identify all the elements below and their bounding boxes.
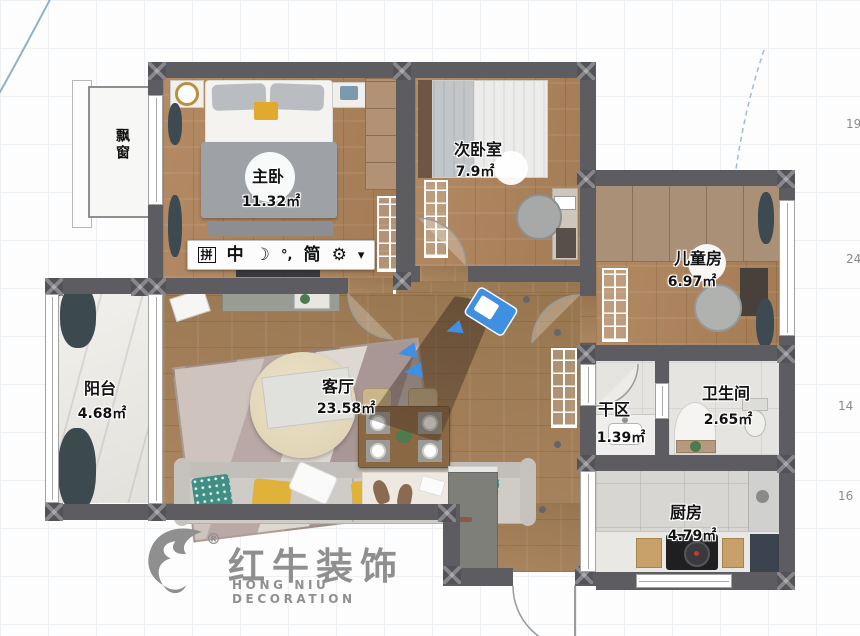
registered-mark: ® (206, 530, 221, 548)
ime-pinyin-button[interactable]: 拼 (198, 247, 216, 263)
dimension-label: 19 (846, 117, 860, 131)
wall-segment (596, 345, 779, 361)
balcony-window (45, 294, 59, 503)
cabinet-handle (458, 517, 472, 522)
room-area-living: 23.58㎡ (317, 398, 375, 418)
cutting-board (722, 538, 744, 568)
wall-segment (468, 266, 596, 282)
plant (58, 428, 96, 512)
dimension-label: 14 (838, 399, 853, 413)
corner-post (45, 503, 63, 521)
room-area-bath: 2.65㎡ (704, 409, 753, 429)
corner-post (131, 278, 149, 296)
ime-mode-button[interactable]: 中 (227, 247, 244, 264)
cutting-board (636, 538, 662, 568)
corner-post (148, 62, 166, 80)
book-cart (556, 228, 576, 258)
door-gap-floor (348, 278, 393, 294)
corner-post (443, 566, 461, 584)
corner-post (777, 572, 795, 590)
corner-post (393, 272, 411, 290)
dimension-label: 16 (838, 489, 853, 503)
kids-chair (694, 284, 742, 332)
room-name-dry: 干区 (598, 396, 630, 420)
wall-segment (415, 266, 420, 282)
logo: ® 红牛装饰 HONG NIU DECORATION (138, 524, 428, 610)
wall-segment (148, 504, 458, 520)
door-gap-floor (420, 266, 468, 282)
room-area-master: 11.32㎡ (242, 191, 300, 211)
bathroom-door (655, 383, 669, 419)
kitchen-sink (756, 490, 769, 503)
kitchen-window (636, 574, 732, 588)
floor-plan-canvas: 飘窗 主卧 11.32㎡ 次卧室 7.9㎡ 儿童房 6.97㎡ 阳台 4.68㎡… (0, 0, 860, 636)
wall-segment (148, 62, 596, 78)
dark-cabinet (750, 534, 779, 572)
radiator (602, 268, 628, 342)
wall-segment (596, 170, 779, 186)
camera-lens-icon (473, 295, 499, 320)
balcony-slider (148, 294, 163, 504)
ime-more-icon[interactable]: ▾ (358, 249, 365, 262)
corner-post (777, 345, 795, 363)
kids-room-window (779, 200, 795, 336)
corner-post (577, 62, 595, 80)
dimension-label: 24 (846, 252, 860, 266)
sofa-armrest (520, 458, 536, 526)
room-name-master: 主卧 (252, 163, 284, 187)
wall-segment (148, 278, 348, 294)
corner-post (777, 455, 795, 473)
dry-area-door (580, 364, 596, 406)
wall-segment (779, 336, 795, 572)
bed-bench (207, 221, 333, 236)
kitchen-sliding-door (580, 471, 596, 572)
room-area-second: 7.9㎡ (456, 161, 495, 181)
corner-post (148, 503, 166, 521)
burner-flame-dot (694, 551, 699, 556)
room-name-bath: 卫生间 (702, 380, 750, 404)
plate (422, 443, 438, 459)
wall-segment (596, 455, 779, 471)
logo-en-text: HONG NIU DECORATION (232, 578, 428, 606)
radiator (551, 348, 577, 428)
corner-post (438, 504, 456, 522)
decor-plate (175, 82, 199, 106)
room-area-kitchen: 4.79㎡ (668, 525, 717, 545)
wall-segment (396, 62, 415, 282)
corner-post (577, 345, 595, 363)
plant (300, 294, 310, 304)
plant (756, 298, 774, 348)
ime-punctuation-button[interactable]: °, (281, 249, 292, 262)
ceiling-light-dot (554, 329, 561, 336)
radiator (424, 180, 448, 258)
plant (168, 195, 182, 257)
room-name-living: 客厅 (322, 373, 354, 397)
ime-settings-gear-icon[interactable]: ⚙ (332, 247, 347, 264)
plant (168, 103, 182, 145)
decor-item (340, 86, 358, 100)
plant (758, 192, 774, 244)
ceiling-light-dot (539, 506, 546, 513)
room-name-kitchen: 厨房 (670, 499, 702, 523)
door-gap-floor (580, 296, 596, 343)
ceiling-light-dot (523, 296, 530, 303)
ceiling-light-dot (554, 441, 561, 448)
bed-headboard (418, 80, 432, 178)
ime-simplified-button[interactable]: 简 (304, 247, 321, 264)
bay-window-opening (148, 95, 163, 205)
plate (370, 443, 386, 459)
room-area-balcony: 4.68㎡ (78, 403, 127, 423)
corner-post (393, 62, 411, 80)
bull-logo-icon (138, 524, 216, 596)
wall-segment (148, 78, 163, 95)
plant (690, 441, 701, 452)
corner-post (777, 170, 795, 188)
room-name-second: 次卧室 (454, 136, 502, 160)
room-name-kids: 儿童房 (674, 245, 722, 269)
ime-halfwidth-moon-icon[interactable]: ☽ (255, 247, 270, 264)
ime-toolbar[interactable]: 拼 中 ☽ °, 简 ⚙ ▾ (187, 240, 375, 270)
room-name-balcony: 阳台 (84, 375, 116, 399)
room-area-dry: 1.39㎡ (597, 427, 646, 447)
room-area-kids: 6.97㎡ (668, 271, 717, 291)
yellow-throw (254, 102, 278, 120)
corner-post (577, 170, 595, 188)
bay-window-label: 飘窗 (112, 128, 132, 162)
